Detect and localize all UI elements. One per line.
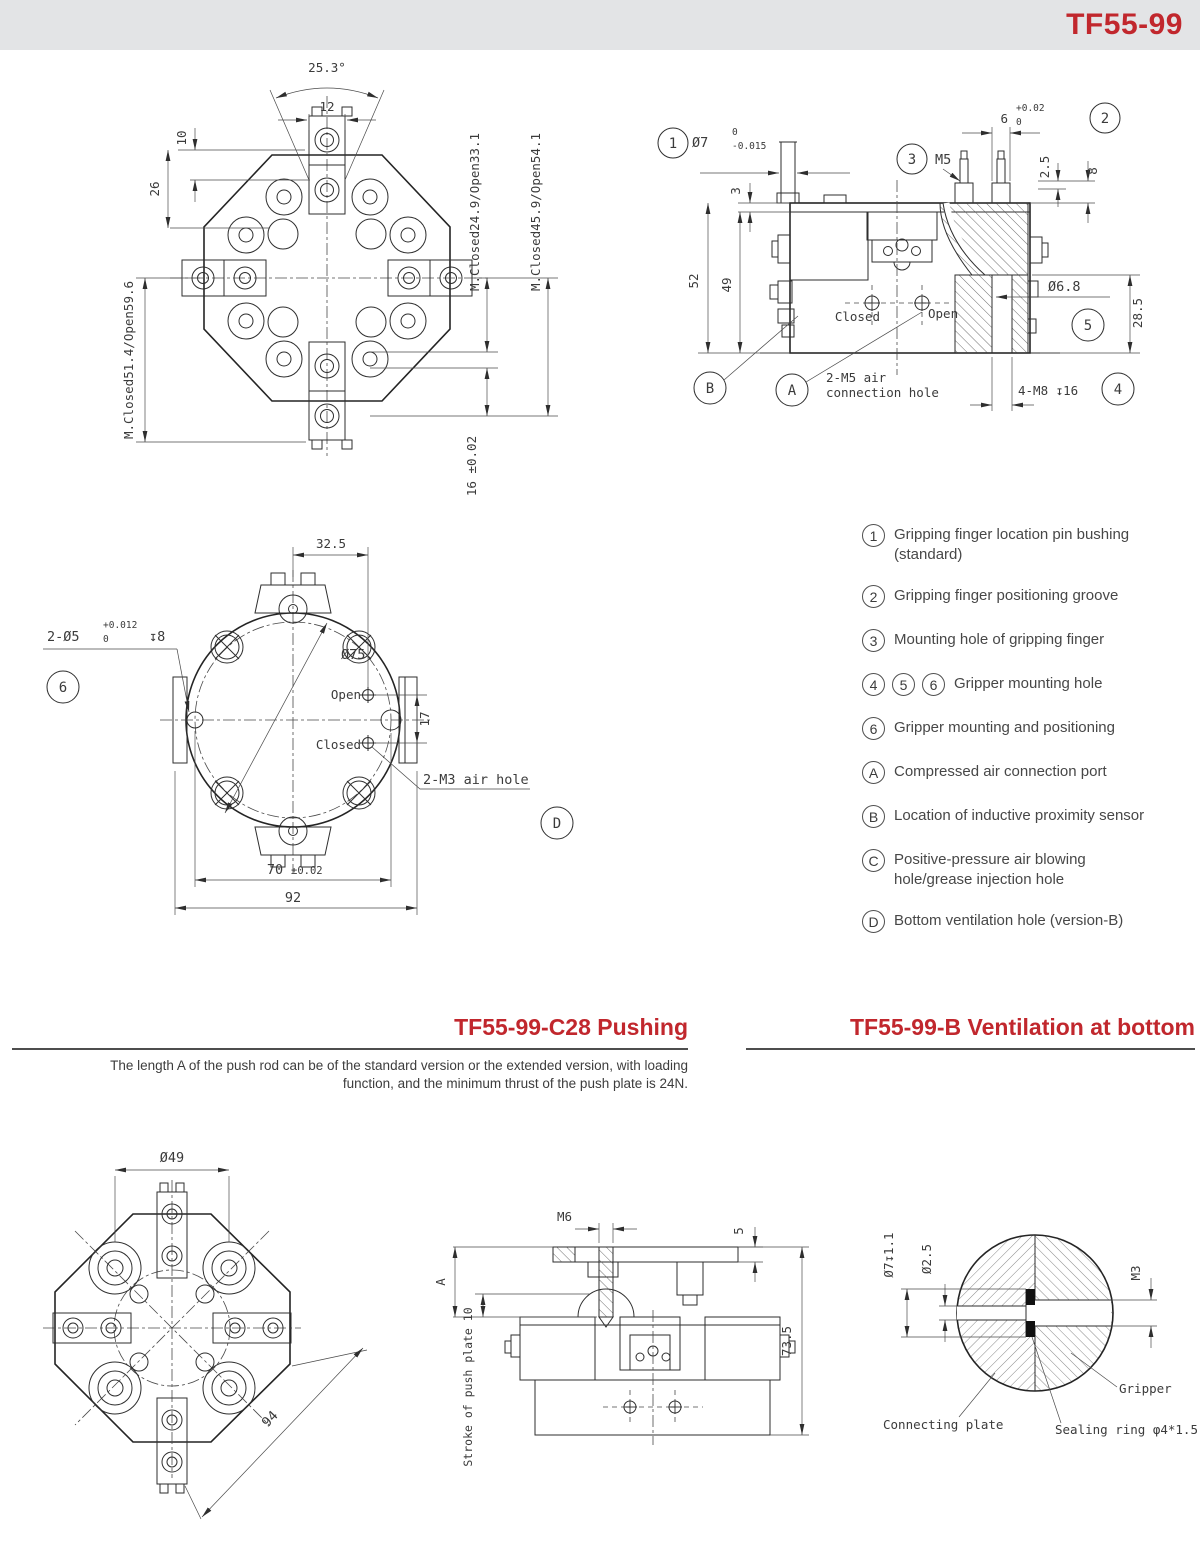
legend: 1 Gripping finger location pin bushing (… [862, 524, 1196, 954]
vent-seal-label: Sealing ring φ4*1.5 [1055, 1422, 1198, 1437]
side-closed-label: Closed [835, 309, 880, 324]
side-body [760, 142, 1060, 375]
bottom-dim32-5-label: 32.5 [316, 536, 346, 551]
side-callout-3: 3 [908, 152, 916, 168]
vent-gripper-label: Gripper [1119, 1381, 1172, 1396]
vent-section-rule [746, 1048, 1195, 1050]
side-dia7-tol-lower: -0.015 [732, 141, 766, 152]
bottom-pin-tol-upper: +0.012 [103, 620, 137, 631]
bottom-dim70-tol: ±0.02 [291, 865, 323, 877]
side-dim6-label: 6 [1000, 111, 1008, 126]
side-callout-2: 2 [1101, 111, 1109, 127]
bottom-dim70-label: 70 [267, 862, 283, 878]
legend-text: Gripping finger location pin bushing (st… [894, 524, 1162, 564]
legend-item: A Compressed air connection port [862, 761, 1196, 784]
side-dim2-5-label: 2.5 [1037, 156, 1052, 179]
bottom-pin-note: 2-Ø5 [47, 629, 80, 645]
pushing-side-body [505, 1247, 795, 1445]
front-right-span-inner-label: M.Closed24.9/Open33.1 [467, 133, 482, 291]
legend-badge: 1 [862, 524, 885, 547]
side-dim49-label: 49 [719, 277, 734, 292]
legend-text: Positive-pressure air blowing hole/greas… [894, 849, 1162, 889]
side-dia6-8-label: Ø6.8 [1048, 279, 1081, 295]
legend-item: D Bottom ventilation hole (version-B) [862, 910, 1196, 933]
pushing-side-drawing: M6 5 A Stroke of push plate 10 73.5 [425, 1185, 825, 1515]
vent-dia7-label: Ø7↧1.1 [881, 1232, 896, 1277]
vent-section-title: TF55-99-B Ventilation at bottom [746, 1014, 1195, 1041]
pushing-side-dimensions: M6 5 A Stroke of push plate 10 73.5 [433, 1209, 809, 1467]
front-dim26-label: 26 [147, 181, 162, 196]
legend-item: C Positive-pressure air blowing hole/gre… [862, 849, 1196, 889]
bottom-dimensions: Ø75 32.5 2-Ø5 +0.012 0 ↧8 6 Open Closed … [43, 536, 573, 915]
pushing-desc-line2: function, and the minimum thrust of the … [28, 1075, 688, 1093]
legend-item: 6 Gripper mounting and positioning [862, 717, 1196, 740]
side-dim28-5-label: 28.5 [1130, 298, 1145, 328]
legend-item: 3 Mounting hole of gripping finger [862, 629, 1196, 652]
legend-text: Gripper mounting hole [954, 673, 1102, 694]
vent-detail-drawing: Ø7↧1.1 Ø2.5 M3 Gripper Connecting plate … [855, 1185, 1200, 1485]
legend-item: B Location of inductive proximity sensor [862, 805, 1196, 828]
vent-dia2-5-label: Ø2.5 [919, 1244, 934, 1274]
legend-badge: 2 [862, 585, 885, 608]
side-air-note-2: connection hole [826, 385, 939, 400]
legend-badge: 5 [892, 673, 915, 696]
vent-m3-label: M3 [1128, 1265, 1143, 1280]
front-width-label: 12 [319, 99, 334, 114]
pushing-side-m6-label: M6 [557, 1209, 572, 1224]
pushing-side-stroke-label: Stroke of push plate 10 [461, 1307, 475, 1466]
pushing-side-dimA-label: A [433, 1278, 448, 1286]
front-view-drawing: 25.3° 12 10 26 M.Closed51.4/Open59.6 [120, 52, 620, 502]
side-dimensions: 1 Ø7 0 -0.015 3 52 49 3 M5 [658, 103, 1145, 411]
side-callout-a: A [788, 383, 797, 399]
bottom-callout-d: D [553, 816, 561, 832]
front-angle-label: 25.3° [308, 60, 346, 75]
bottom-view-drawing: Ø75 32.5 2-Ø5 +0.012 0 ↧8 6 Open Closed … [25, 525, 625, 955]
pushing-front-body [43, 1180, 301, 1493]
pushing-section-description: The length A of the push rod can be of t… [28, 1057, 688, 1093]
side-dim3-label: 3 [728, 187, 743, 195]
side-view-drawing: 1 Ø7 0 -0.015 3 52 49 3 M5 [640, 85, 1200, 435]
side-callout-1: 1 [669, 136, 677, 152]
legend-badge: C [862, 849, 885, 872]
side-dia7-label: Ø7 [692, 135, 708, 151]
pushing-section-title: TF55-99-C28 Pushing [0, 1014, 688, 1041]
side-callout-5: 5 [1084, 318, 1092, 334]
pushing-front-drawing: Ø49 94 [35, 1130, 395, 1550]
pushing-front-dia49-label: Ø49 [160, 1150, 184, 1166]
pushing-side-dim73-5-label: 73.5 [779, 1326, 794, 1356]
legend-badge: 6 [862, 717, 885, 740]
legend-badge: 6 [922, 673, 945, 696]
side-callout-b: B [706, 381, 714, 397]
legend-text: Bottom ventilation hole (version-B) [894, 910, 1123, 931]
legend-text: Compressed air connection port [894, 761, 1107, 782]
side-dim52-label: 52 [686, 273, 701, 288]
bottom-open-label: Open [331, 687, 361, 702]
side-open-label: Open [928, 306, 958, 321]
page-title: TF55-99 [1066, 8, 1183, 42]
bottom-dim17-label: 17 [417, 711, 432, 726]
legend-item: 1 Gripping finger location pin bushing (… [862, 524, 1196, 564]
side-dim6-tol-lower: 0 [1016, 117, 1022, 128]
legend-text: Location of inductive proximity sensor [894, 805, 1144, 826]
front-left-span-label: M.Closed51.4/Open59.6 [121, 281, 136, 439]
bottom-air-note: 2-M3 air hole [423, 772, 529, 788]
side-m5-label: M5 [935, 152, 951, 168]
legend-badge: B [862, 805, 885, 828]
legend-text: Gripping finger positioning groove [894, 585, 1118, 606]
pushing-section-rule [12, 1048, 688, 1050]
bottom-pin-tol-lower: 0 [103, 634, 109, 645]
side-dim6-tol-upper: +0.02 [1016, 103, 1045, 114]
side-dia7-tol-upper: 0 [732, 127, 738, 138]
side-callout-4: 4 [1114, 382, 1122, 398]
vent-plate-label: Connecting plate [883, 1417, 1003, 1432]
front-dim10-label: 10 [174, 130, 189, 145]
legend-badge: D [862, 910, 885, 933]
side-m8-note: 4-M8 ↧16 [1018, 383, 1078, 398]
front-bottom-dim-label: 16 ±0.02 [464, 436, 479, 496]
legend-text: Gripper mounting and positioning [894, 717, 1115, 738]
bottom-body [160, 570, 430, 873]
bottom-pin-depth: ↧8 [149, 629, 165, 645]
front-right-span-outer-label: M.Closed45.9/Open54.1 [528, 133, 543, 291]
pushing-desc-line1: The length A of the push rod can be of t… [28, 1057, 688, 1075]
vent-body [957, 1235, 1113, 1391]
pushing-side-dim5-label: 5 [731, 1227, 746, 1235]
side-dim8-label: 8 [1085, 167, 1100, 175]
legend-text: Mounting hole of gripping finger [894, 629, 1104, 650]
bottom-closed-label: Closed [316, 737, 361, 752]
pushing-front-dimensions: Ø49 94 [115, 1150, 367, 1519]
side-air-note-1: 2-M5 air [826, 370, 887, 385]
legend-item: 4 5 6 Gripper mounting hole [862, 673, 1196, 696]
bottom-callout-6: 6 [59, 680, 67, 696]
legend-item: 2 Gripping finger positioning groove [862, 585, 1196, 608]
datasheet-page: TF55-99 [0, 0, 1200, 1552]
bottom-dia75-label: Ø75 [341, 647, 365, 663]
bottom-dim92-label: 92 [285, 890, 301, 906]
legend-badge: 4 [862, 673, 885, 696]
legend-badge: A [862, 761, 885, 784]
header-band [0, 0, 1200, 50]
pushing-front-dim94-label: 94 [259, 1408, 282, 1431]
legend-badge: 3 [862, 629, 885, 652]
